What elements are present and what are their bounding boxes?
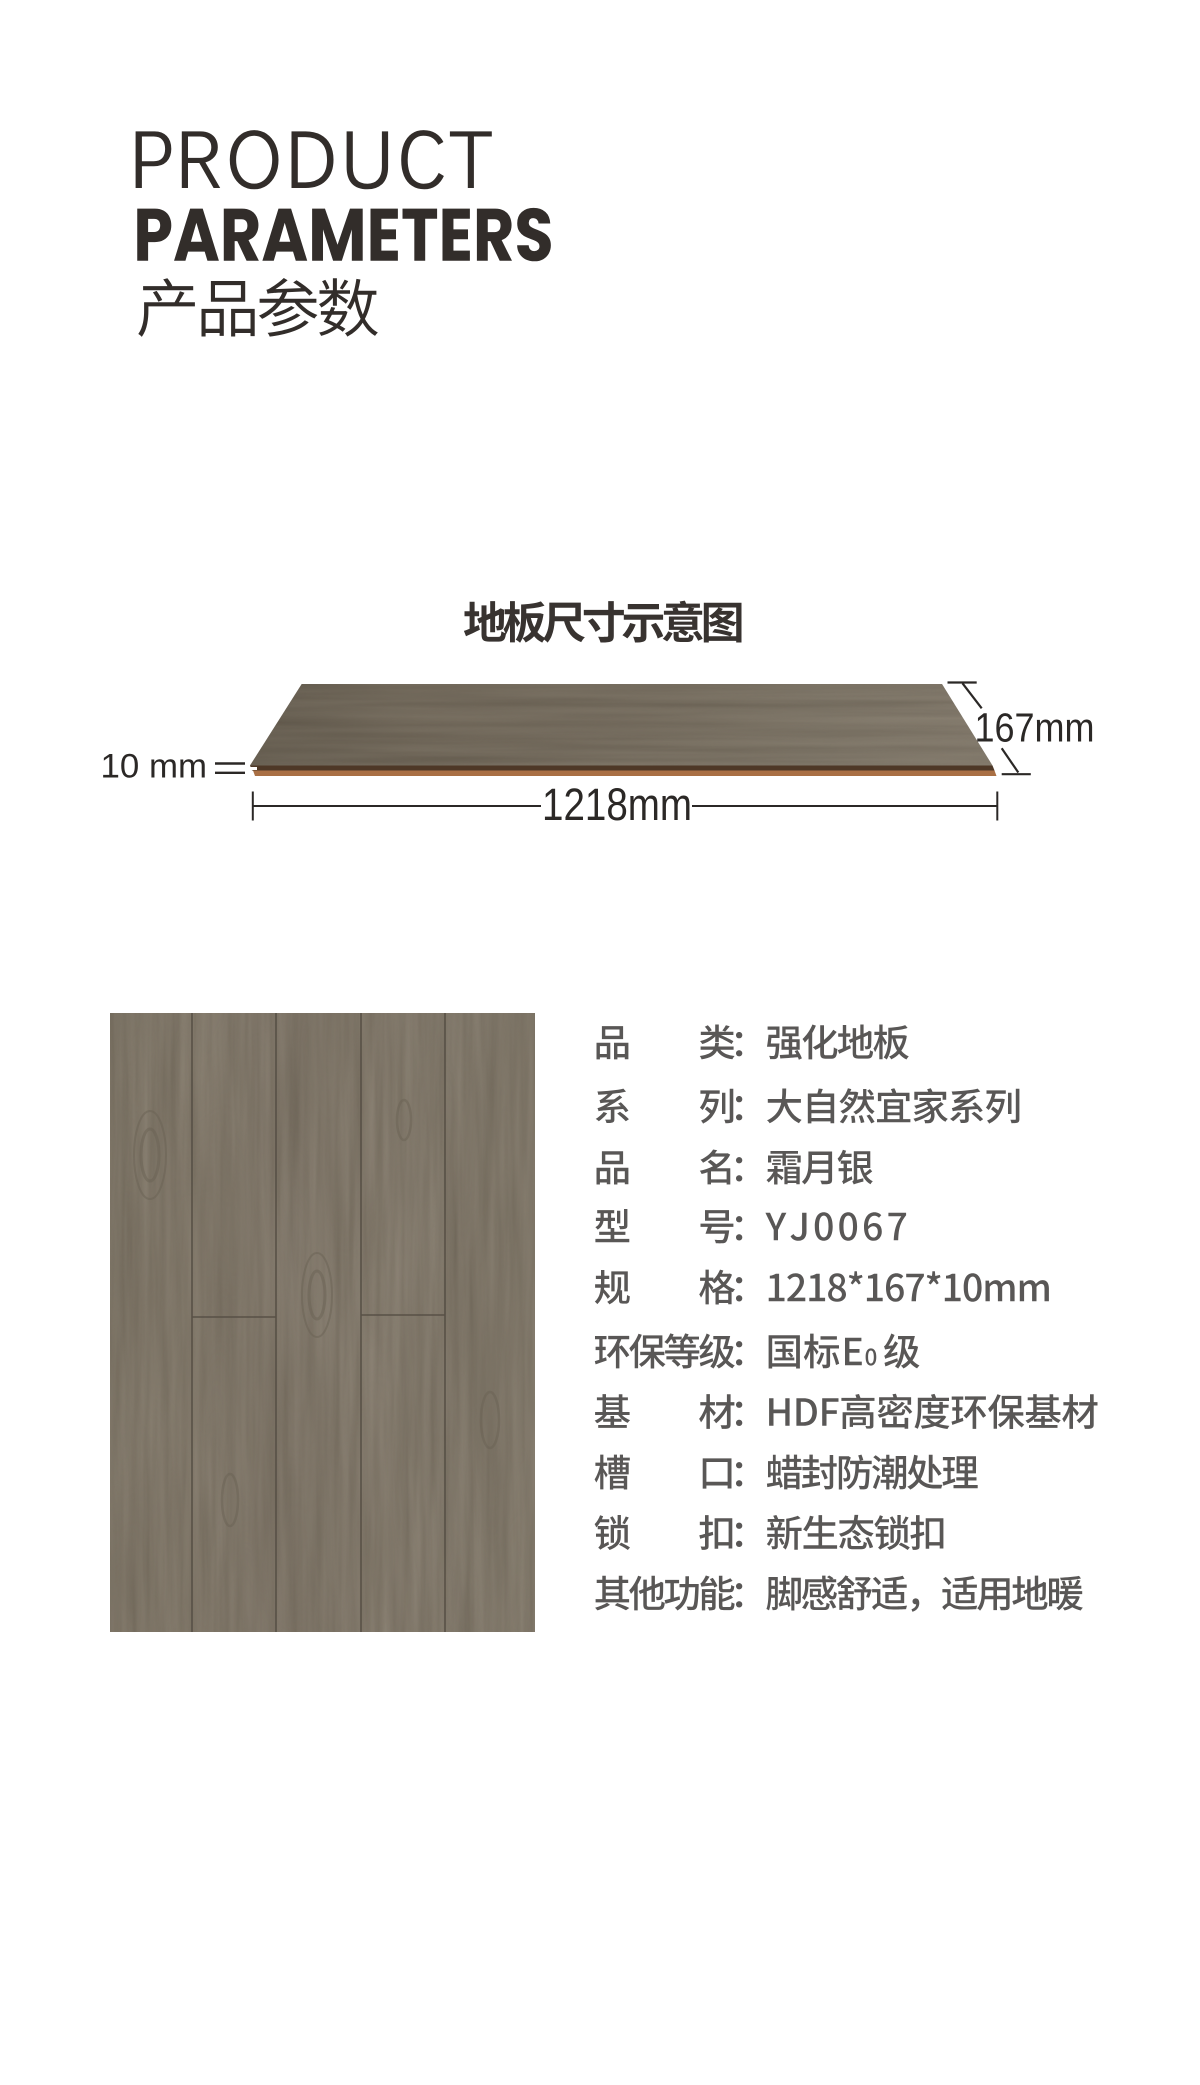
svg-text:1218mm: 1218mm	[542, 779, 692, 830]
svg-text:167mm: 167mm	[975, 705, 1095, 751]
svg-text:10 mm: 10 mm	[101, 748, 208, 786]
